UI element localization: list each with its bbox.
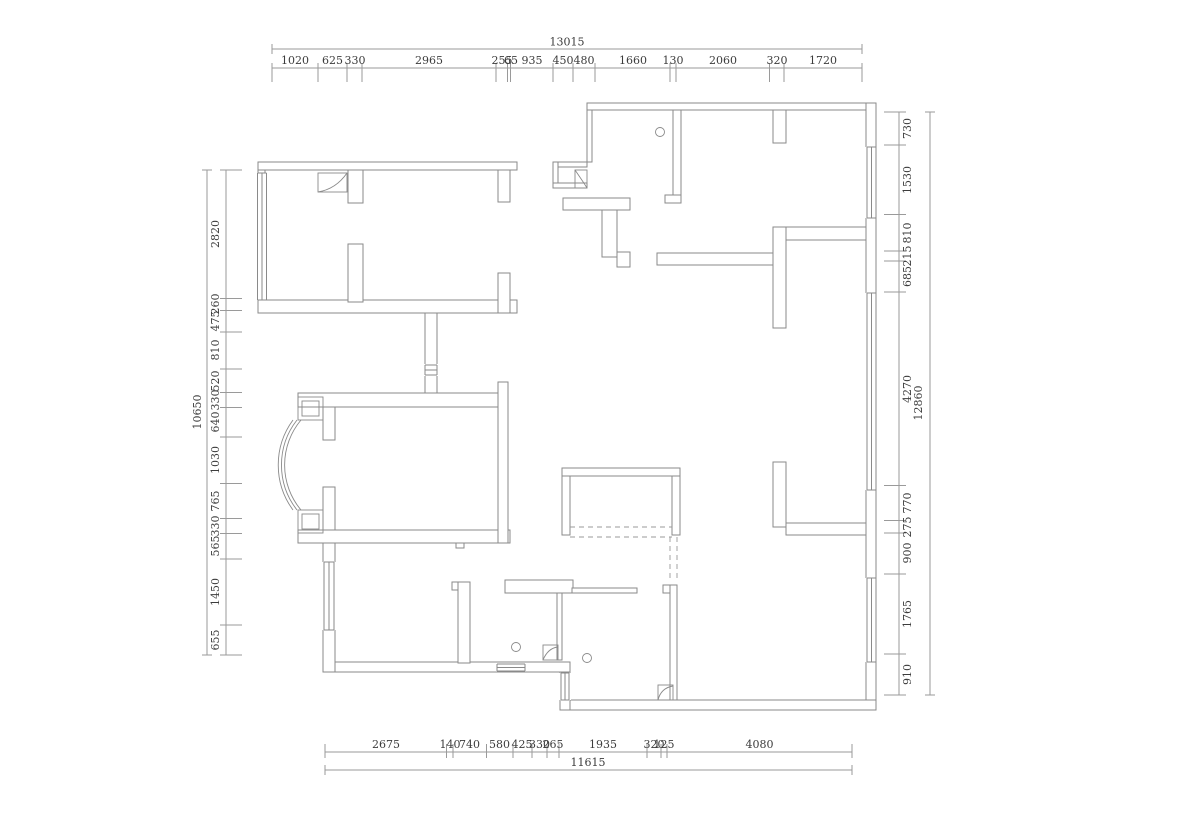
floor-drain-icon (512, 643, 521, 652)
dimension-right: 12860 730 1530 810 215 685 4270 770 275 … (884, 112, 935, 695)
floor-plan-canvas: 13015 1020 625 330 2965 255 65 935 450 4… (0, 0, 1200, 831)
dim-left-seg-2: 475 (209, 311, 222, 332)
dim-left-total: 10650 (191, 395, 204, 430)
dim-top-seg-7: 450 (553, 54, 574, 67)
dim-top-seg-12: 320 (767, 54, 788, 67)
dim-right-seg-8: 900 (901, 543, 914, 564)
dim-bottom-seg-2: 740 (459, 738, 480, 751)
door-symbol (543, 645, 558, 660)
dim-top-seg-3: 2965 (415, 54, 443, 67)
dim-top-seg-5: 65 (504, 54, 518, 67)
dim-bottom-seg-10: 4080 (746, 738, 774, 751)
dim-right-seg-5: 4270 (901, 375, 914, 403)
dim-bottom-seg-0: 2675 (372, 738, 400, 751)
dim-right-seg-1: 1530 (901, 166, 914, 194)
dim-bottom-seg-1: 140 (440, 738, 461, 751)
floor-drain-icon (583, 654, 592, 663)
dim-top-seg-11: 2060 (709, 54, 737, 67)
dim-top-seg-6: 935 (522, 54, 543, 67)
dim-right-seg-2: 810 (901, 223, 914, 244)
dim-left-seg-5: 330 (209, 390, 222, 411)
dim-bottom-total: 11615 (571, 756, 606, 769)
dim-top-seg-1: 625 (322, 54, 343, 67)
dim-bottom-seg-9: 125 (654, 738, 675, 751)
door-symbol (318, 173, 347, 192)
dim-top-seg-13: 1720 (809, 54, 837, 67)
dim-right-seg-4: 685 (901, 266, 914, 287)
dim-left-seg-7: 1030 (209, 446, 222, 474)
dim-bottom-seg-6: 265 (543, 738, 564, 751)
entry-alcove (553, 162, 587, 188)
dimension-left: 10650 2820 260 475 810 520 330 640 1030 … (191, 170, 242, 655)
dim-left-seg-6: 640 (209, 412, 222, 433)
dimension-bottom: 11615 2675 140 740 580 425 330 265 1935 … (325, 738, 852, 775)
dim-left-seg-9: 330 (209, 516, 222, 537)
dim-left-seg-3: 810 (209, 340, 222, 361)
dim-top-seg-0: 1020 (281, 54, 309, 67)
dim-left-seg-12: 655 (209, 630, 222, 651)
bay-window (278, 397, 323, 533)
dim-bottom-seg-7: 1935 (589, 738, 617, 751)
dim-left-seg-0: 2820 (209, 220, 222, 248)
dim-right-seg-6: 770 (901, 493, 914, 514)
floor-plan-page: 13015 1020 625 330 2965 255 65 935 450 4… (0, 0, 1200, 831)
dim-right-seg-10: 910 (901, 664, 914, 685)
dim-top-total: 13015 (550, 36, 585, 49)
floor-drain-icon (656, 128, 665, 137)
dim-left-seg-10: 565 (209, 536, 222, 557)
dim-top-seg-8: 480 (574, 54, 595, 67)
dim-top-seg-2: 330 (345, 54, 366, 67)
dim-left-seg-11: 1450 (209, 578, 222, 606)
dim-right-seg-0: 730 (901, 118, 914, 139)
dim-top-seg-9: 1660 (619, 54, 647, 67)
dim-bottom-seg-3: 580 (489, 738, 510, 751)
door-symbols (318, 170, 673, 700)
dim-left-seg-8: 765 (209, 491, 222, 512)
dim-left-seg-4: 520 (209, 371, 222, 392)
dashed-opening-lines (570, 527, 677, 582)
dimension-top: 13015 1020 625 330 2965 255 65 935 450 4… (272, 36, 862, 83)
dim-right-seg-3: 215 (901, 246, 914, 267)
dim-right-seg-9: 1765 (901, 600, 914, 628)
dim-right-seg-7: 275 (901, 517, 914, 538)
dim-top-seg-10: 130 (663, 54, 684, 67)
